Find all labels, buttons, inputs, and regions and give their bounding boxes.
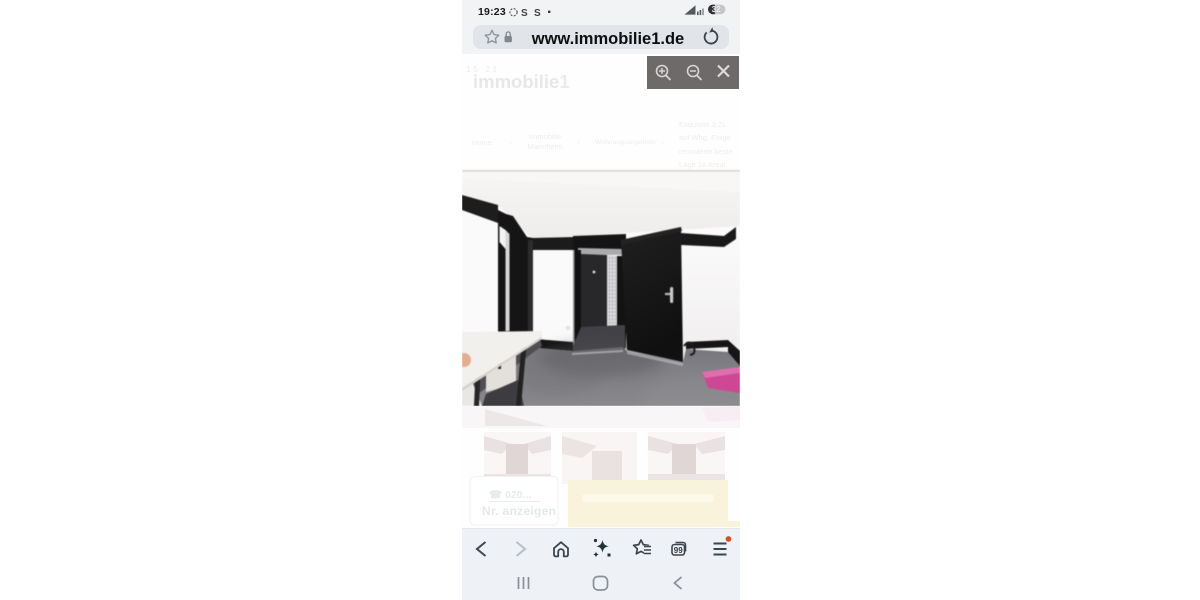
svg-text:32: 32	[712, 5, 722, 14]
svg-text:S: S	[534, 8, 541, 19]
svg-text:99: 99	[674, 546, 683, 555]
svg-text:S: S	[521, 8, 528, 19]
